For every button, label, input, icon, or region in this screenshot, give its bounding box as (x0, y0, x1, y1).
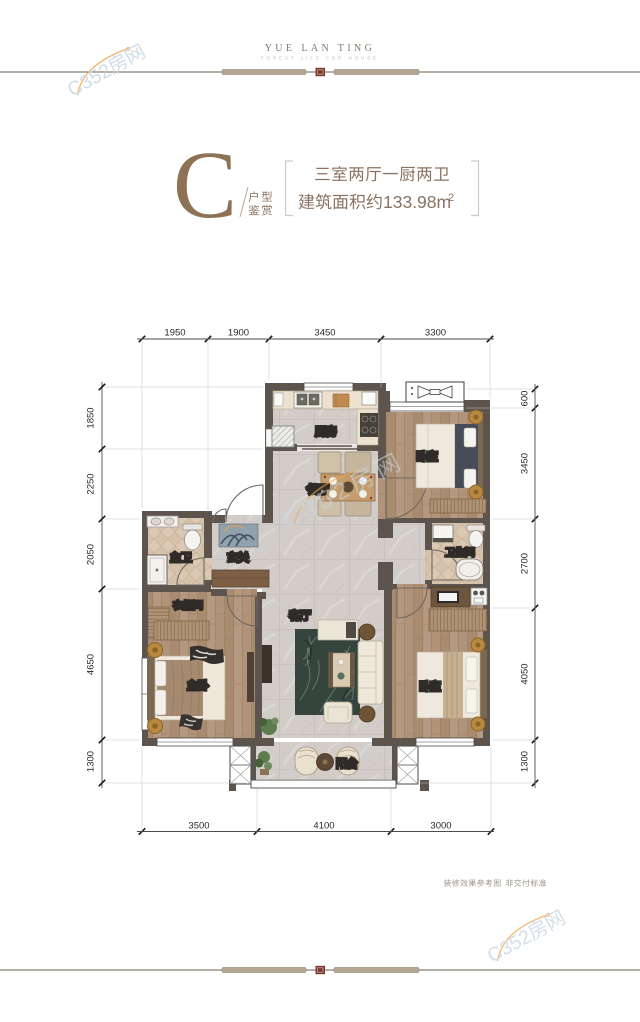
svg-text:4650: 4650 (86, 654, 97, 675)
svg-text:3000: 3000 (430, 821, 451, 832)
svg-text:YUE LAN TING: YUE LAN TING (265, 43, 376, 54)
svg-text:C: C (173, 131, 237, 238)
svg-text:3450: 3450 (520, 453, 531, 474)
svg-text:4050: 4050 (520, 663, 531, 684)
svg-text:1300: 1300 (520, 751, 531, 772)
svg-text:FOREST LIFE FOR HOUSE: FOREST LIFE FOR HOUSE (261, 56, 379, 61)
svg-text:3300: 3300 (425, 328, 446, 339)
svg-text:2700: 2700 (520, 553, 531, 574)
svg-text:600: 600 (520, 391, 531, 407)
svg-text:1950: 1950 (164, 328, 185, 339)
svg-text:3450: 3450 (314, 328, 335, 339)
svg-text:2250: 2250 (86, 473, 97, 494)
svg-text:1300: 1300 (86, 751, 97, 772)
svg-text:3500: 3500 (188, 821, 209, 832)
svg-text:1900: 1900 (228, 328, 249, 339)
svg-text:4100: 4100 (313, 821, 334, 832)
svg-text:133.98m: 133.98m (383, 192, 451, 212)
svg-text:2050: 2050 (86, 544, 97, 565)
svg-text:2: 2 (448, 192, 454, 204)
svg-text:1850: 1850 (86, 407, 97, 428)
